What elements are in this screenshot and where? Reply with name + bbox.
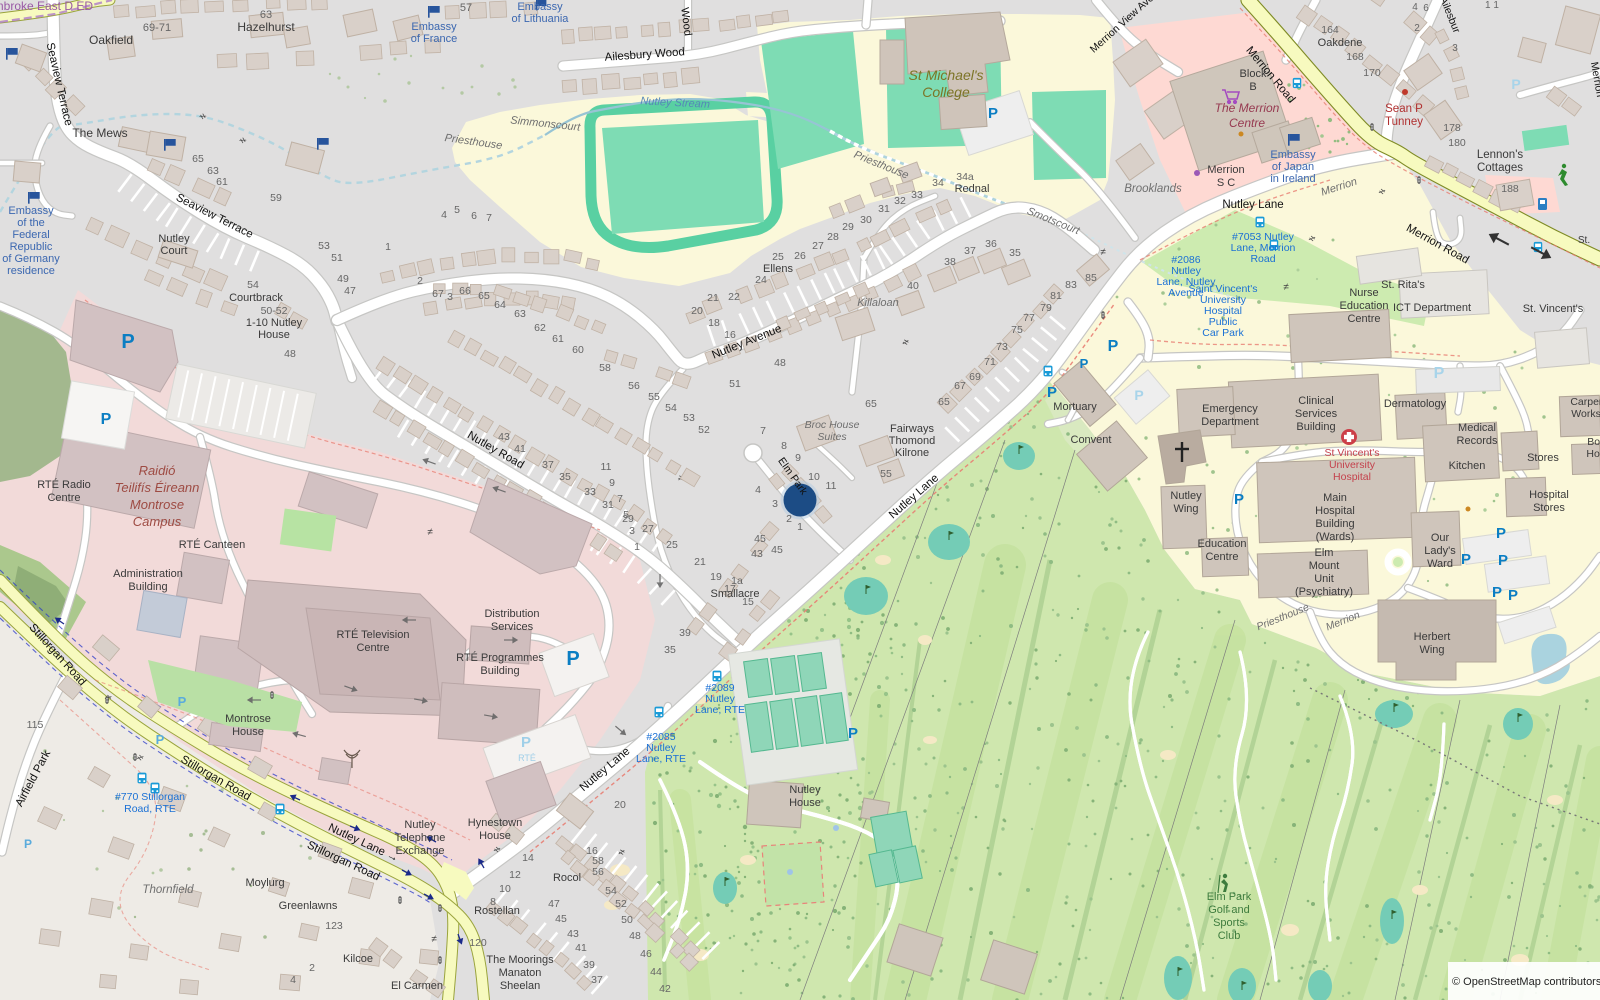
- svg-text:Nutley Lane: Nutley Lane: [1222, 199, 1283, 211]
- svg-text:38: 38: [944, 256, 956, 268]
- svg-text:51: 51: [331, 252, 343, 264]
- svg-text:24: 24: [755, 274, 767, 286]
- svg-text:170: 170: [1363, 67, 1381, 79]
- svg-text:St. Vincent's: St. Vincent's: [1523, 303, 1584, 315]
- svg-text:The Mews: The Mews: [72, 126, 127, 140]
- svg-text:56: 56: [628, 380, 640, 392]
- svg-text:P: P: [848, 725, 858, 742]
- svg-text:164: 164: [1321, 24, 1339, 36]
- svg-text:7: 7: [486, 212, 492, 224]
- svg-text:64: 64: [494, 299, 506, 311]
- svg-text:© OpenStreetMap contributors: © OpenStreetMap contributors: [1452, 976, 1600, 988]
- svg-text:1: 1: [634, 541, 640, 553]
- svg-text:Rocol: Rocol: [553, 872, 581, 884]
- svg-text:27: 27: [812, 240, 824, 252]
- svg-text:34: 34: [932, 177, 944, 189]
- svg-text:40: 40: [907, 280, 919, 292]
- svg-text:180: 180: [1448, 137, 1466, 149]
- svg-text:10: 10: [499, 883, 511, 895]
- svg-text:P: P: [1496, 525, 1506, 542]
- svg-text:2: 2: [786, 513, 792, 525]
- svg-text:Oakdene: Oakdene: [1318, 37, 1363, 49]
- svg-text:53: 53: [318, 240, 330, 252]
- svg-text:RTÉ: RTÉ: [518, 753, 536, 763]
- svg-text:5: 5: [623, 509, 629, 521]
- svg-text:21: 21: [694, 556, 706, 568]
- svg-text:65: 65: [192, 153, 204, 165]
- svg-text:66: 66: [459, 285, 471, 297]
- svg-text:48: 48: [284, 348, 296, 360]
- svg-text:CarpentWorksh: CarpentWorksh: [1570, 396, 1600, 420]
- svg-text:54: 54: [665, 402, 677, 414]
- svg-text:≠: ≠: [1100, 247, 1106, 258]
- svg-text:37: 37: [591, 974, 603, 986]
- svg-text:P: P: [24, 837, 32, 851]
- svg-text:51: 51: [729, 378, 741, 390]
- svg-text:St. Rita's: St. Rita's: [1381, 279, 1425, 291]
- svg-text:16: 16: [724, 329, 736, 341]
- svg-text:178: 178: [1443, 122, 1461, 134]
- svg-text:22: 22: [728, 291, 740, 303]
- svg-text:39: 39: [583, 959, 595, 971]
- svg-text:7: 7: [760, 425, 766, 437]
- svg-text:Mortuary: Mortuary: [1053, 401, 1097, 413]
- svg-text:73: 73: [996, 341, 1008, 353]
- svg-text:Nurse: Nurse: [1349, 287, 1378, 299]
- svg-text:Education: Education: [1340, 300, 1389, 312]
- svg-text:Fairways: Fairways: [890, 423, 935, 435]
- svg-text:20: 20: [614, 799, 626, 811]
- svg-text:≠: ≠: [431, 934, 437, 945]
- svg-text:P: P: [521, 734, 531, 751]
- svg-text:45: 45: [754, 533, 766, 545]
- svg-text:34a: 34a: [956, 171, 974, 183]
- svg-text:27: 27: [642, 523, 654, 535]
- svg-text:El Carmen: El Carmen: [391, 980, 443, 992]
- svg-text:35: 35: [1009, 247, 1021, 259]
- svg-text:Hazelhurst: Hazelhurst: [237, 20, 295, 34]
- svg-text:58: 58: [599, 362, 611, 374]
- svg-text:65: 65: [865, 398, 877, 410]
- svg-text:55: 55: [880, 468, 892, 480]
- svg-text:NutleyWing: NutleyWing: [1170, 490, 1202, 515]
- svg-text:Killaloan: Killaloan: [857, 297, 899, 309]
- svg-text:embroke East D ED: embroke East D ED: [0, 0, 93, 13]
- svg-text:ClinicalServicesBuilding: ClinicalServicesBuilding: [1295, 395, 1338, 433]
- svg-text:52: 52: [698, 424, 710, 436]
- svg-text:81: 81: [1050, 290, 1062, 302]
- svg-text:P: P: [1134, 387, 1143, 403]
- svg-text:57: 57: [460, 2, 472, 14]
- svg-text:39: 39: [679, 627, 691, 639]
- svg-text:25: 25: [772, 251, 784, 263]
- svg-text:75: 75: [1011, 324, 1023, 336]
- svg-text:1: 1: [797, 521, 803, 533]
- svg-text:Stores: Stores: [1527, 452, 1559, 464]
- svg-text:11: 11: [601, 461, 612, 473]
- svg-text:HospitalStores: HospitalStores: [1529, 489, 1569, 514]
- svg-text:47: 47: [344, 285, 356, 297]
- svg-text:7: 7: [617, 493, 623, 505]
- svg-text:P: P: [1080, 356, 1089, 371]
- svg-text:Brooklands: Brooklands: [1124, 183, 1182, 195]
- svg-text:#770 StillorganRoad, RTE: #770 StillorganRoad, RTE: [115, 791, 185, 815]
- svg-text:79: 79: [1040, 302, 1052, 314]
- svg-text:P: P: [1511, 76, 1520, 92]
- svg-text:P: P: [988, 105, 998, 122]
- svg-text:50: 50: [621, 914, 633, 926]
- svg-text:77: 77: [1023, 312, 1035, 324]
- svg-text:MedicalRecords: MedicalRecords: [1457, 422, 1498, 447]
- svg-text:Kitchen: Kitchen: [1449, 460, 1486, 472]
- svg-text:46: 46: [640, 948, 652, 960]
- svg-text:32: 32: [894, 195, 906, 207]
- svg-text:60: 60: [572, 344, 584, 356]
- svg-text:5: 5: [454, 204, 460, 216]
- svg-text:P: P: [156, 732, 165, 747]
- svg-text:Embassyof Lithuania: Embassyof Lithuania: [512, 1, 570, 25]
- svg-text:3: 3: [1452, 43, 1458, 54]
- svg-text:59: 59: [270, 192, 282, 204]
- svg-text:P: P: [1498, 552, 1508, 569]
- svg-text:49: 49: [337, 273, 349, 285]
- svg-text:50-52: 50-52: [261, 305, 288, 317]
- svg-text:1-10 Nutley: 1-10 Nutley: [246, 317, 303, 329]
- svg-text:Kilrone: Kilrone: [895, 447, 929, 459]
- svg-text:65: 65: [938, 396, 950, 408]
- svg-text:123: 123: [325, 920, 343, 932]
- svg-text:45: 45: [555, 913, 567, 925]
- svg-text:62: 62: [534, 322, 546, 334]
- svg-text:P: P: [566, 648, 579, 670]
- svg-text:14: 14: [522, 852, 534, 864]
- svg-text:4: 4: [290, 974, 296, 986]
- svg-text:115: 115: [27, 719, 44, 731]
- svg-text:61: 61: [216, 176, 228, 188]
- svg-text:188: 188: [1501, 183, 1519, 195]
- svg-text:10: 10: [808, 471, 820, 483]
- svg-text:55: 55: [648, 391, 660, 403]
- svg-text:2: 2: [309, 962, 315, 974]
- svg-text:43: 43: [567, 928, 579, 940]
- svg-text:≠: ≠: [427, 527, 433, 538]
- svg-text:3: 3: [772, 498, 778, 510]
- svg-text:54: 54: [247, 279, 259, 291]
- svg-text:Dermatology: Dermatology: [1384, 398, 1447, 410]
- svg-text:71: 71: [984, 356, 996, 368]
- svg-text:63: 63: [514, 308, 526, 320]
- svg-text:9: 9: [795, 452, 801, 464]
- svg-text:29: 29: [842, 221, 854, 233]
- svg-text:36: 36: [985, 238, 997, 250]
- svg-text:Lennon'sCottages: Lennon'sCottages: [1477, 149, 1524, 174]
- svg-text:8: 8: [490, 896, 496, 908]
- svg-text:1a: 1a: [731, 575, 743, 587]
- svg-text:30: 30: [860, 214, 872, 226]
- svg-text:P: P: [178, 694, 187, 709]
- svg-text:≠: ≠: [1283, 282, 1289, 293]
- svg-text:Embassyof France: Embassyof France: [411, 21, 457, 45]
- svg-text:EmergencyDepartment: EmergencyDepartment: [1201, 403, 1258, 428]
- svg-text:168: 168: [1346, 51, 1364, 63]
- svg-text:6: 6: [1423, 3, 1429, 14]
- svg-text:48: 48: [629, 930, 641, 942]
- svg-text:P: P: [121, 331, 134, 353]
- svg-text:P: P: [1492, 584, 1502, 601]
- svg-text:61: 61: [552, 333, 564, 345]
- svg-text:BoilHou: BoilHou: [1586, 436, 1600, 460]
- svg-text:56: 56: [592, 866, 604, 878]
- svg-text:2: 2: [417, 275, 423, 287]
- svg-text:House: House: [258, 329, 290, 341]
- svg-text:67: 67: [954, 380, 966, 392]
- svg-text:12: 12: [509, 869, 521, 881]
- svg-text:35: 35: [664, 644, 676, 656]
- svg-text:19: 19: [710, 571, 722, 583]
- svg-text:33: 33: [584, 486, 596, 498]
- svg-text:35: 35: [559, 471, 571, 483]
- svg-text:42: 42: [659, 983, 671, 995]
- svg-text:28: 28: [827, 231, 839, 243]
- svg-text:69-71: 69-71: [143, 22, 171, 34]
- svg-text:83: 83: [1065, 279, 1077, 291]
- svg-text:Moylurg: Moylurg: [245, 877, 284, 889]
- svg-text:DistributionServices: DistributionServices: [484, 608, 539, 633]
- svg-text:P: P: [1508, 587, 1518, 604]
- svg-text:52: 52: [615, 898, 627, 910]
- svg-text:26: 26: [794, 250, 806, 262]
- svg-text:43: 43: [751, 548, 763, 560]
- svg-text:Convent: Convent: [1071, 434, 1112, 446]
- svg-text:NutleyCourt: NutleyCourt: [158, 233, 190, 257]
- svg-text:48: 48: [774, 357, 786, 369]
- svg-text:Sean PTunney: Sean PTunney: [1385, 103, 1423, 128]
- svg-text:P: P: [1234, 491, 1244, 508]
- svg-text:41: 41: [514, 443, 526, 455]
- svg-text:Smallacre: Smallacre: [711, 588, 760, 600]
- svg-text:43: 43: [498, 431, 510, 443]
- svg-text:67: 67: [432, 288, 444, 300]
- svg-text:P: P: [1461, 551, 1471, 568]
- svg-text:4: 4: [1412, 2, 1418, 13]
- svg-text:37: 37: [542, 459, 554, 471]
- svg-text:69: 69: [969, 371, 981, 383]
- svg-text:45: 45: [771, 544, 783, 556]
- svg-text:120: 120: [469, 937, 487, 949]
- svg-text:Rostellan: Rostellan: [474, 905, 520, 917]
- svg-text:NutleyHouse: NutleyHouse: [789, 784, 821, 809]
- svg-text:3: 3: [447, 291, 453, 303]
- svg-text:2: 2: [1414, 23, 1420, 34]
- svg-text:25: 25: [666, 539, 678, 551]
- svg-text:St.: St.: [1578, 235, 1590, 246]
- svg-text:Centre: Centre: [1347, 313, 1380, 325]
- svg-text:Ellens: Ellens: [763, 263, 793, 275]
- svg-text:Embassyof Japanin Ireland: Embassyof Japanin Ireland: [1270, 149, 1316, 185]
- svg-text:Oakfield: Oakfield: [89, 33, 133, 47]
- svg-text:18: 18: [708, 317, 720, 329]
- svg-text:3: 3: [629, 525, 635, 537]
- svg-text:P: P: [1047, 384, 1057, 401]
- svg-text:Courtbrack: Courtbrack: [229, 292, 283, 304]
- svg-text:ICT Department: ICT Department: [1393, 302, 1471, 314]
- svg-text:Thornfield: Thornfield: [142, 884, 194, 896]
- svg-text:6: 6: [471, 210, 477, 222]
- svg-text:P: P: [1108, 338, 1119, 355]
- svg-text:4: 4: [441, 209, 447, 221]
- svg-text:Rednal: Rednal: [955, 183, 990, 195]
- svg-text:9: 9: [609, 477, 615, 489]
- svg-text:Embassyof theFederalRepublicof: Embassyof theFederalRepublicof Germanyre…: [2, 205, 60, 277]
- svg-text:85: 85: [1085, 272, 1097, 284]
- svg-text:1: 1: [385, 241, 391, 253]
- svg-text:Thomond: Thomond: [889, 435, 935, 447]
- svg-text:4: 4: [755, 484, 761, 496]
- svg-text:1 1: 1 1: [1485, 0, 1499, 11]
- svg-text:8: 8: [781, 440, 787, 452]
- svg-text:Kilcoe: Kilcoe: [343, 953, 373, 965]
- svg-text:33: 33: [911, 189, 923, 201]
- svg-text:20: 20: [691, 305, 703, 317]
- svg-text:44: 44: [650, 966, 662, 978]
- svg-text:31: 31: [602, 499, 614, 511]
- svg-text:Greenlawns: Greenlawns: [279, 900, 338, 912]
- svg-text:RTÉ Canteen: RTÉ Canteen: [179, 538, 245, 551]
- svg-text:47: 47: [548, 898, 560, 910]
- svg-text:53: 53: [683, 412, 695, 424]
- svg-text:31: 31: [878, 203, 890, 215]
- svg-text:41: 41: [575, 942, 587, 954]
- svg-text:11: 11: [826, 480, 837, 492]
- svg-text:P: P: [1434, 365, 1445, 382]
- svg-text:37: 37: [964, 245, 976, 257]
- svg-text:21: 21: [707, 292, 719, 304]
- svg-text:65: 65: [478, 290, 490, 302]
- svg-text:P: P: [101, 411, 112, 428]
- svg-text:54: 54: [605, 885, 617, 897]
